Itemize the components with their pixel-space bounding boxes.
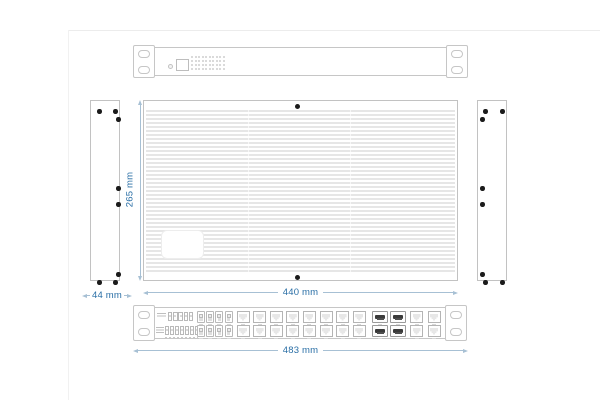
vent-hole <box>198 68 200 70</box>
port-number <box>258 338 262 340</box>
terminal-contact <box>168 312 172 321</box>
dimension-265-label: 265 mm <box>125 168 136 212</box>
mounting-ear-left <box>133 45 155 78</box>
terminal-contact <box>180 326 184 335</box>
fin-joint <box>350 110 351 272</box>
page-border-top <box>68 30 600 31</box>
side-view-right <box>477 100 507 281</box>
sfp-port <box>215 311 223 323</box>
port-number <box>274 338 278 340</box>
terminal-contact <box>189 312 193 321</box>
vent-hole <box>202 64 204 66</box>
terminal-contact <box>170 326 174 335</box>
terminal-contact <box>185 326 189 335</box>
vent-hole <box>198 56 200 58</box>
rj45-port <box>303 311 316 323</box>
dimensional-drawing: 265 mm 440 mm 44 mm 483 mm <box>0 0 600 400</box>
vent-hole <box>195 56 197 58</box>
power-socket <box>176 59 189 71</box>
rj45-port <box>253 325 266 337</box>
port-number <box>208 338 212 340</box>
port-number <box>227 338 231 340</box>
sfp-port <box>197 325 205 337</box>
port-number <box>291 338 295 340</box>
vent-hole <box>202 56 204 58</box>
rj45-port <box>353 325 366 337</box>
rj45-port <box>336 311 349 323</box>
dimension-44: 44 mm <box>82 290 132 301</box>
terminal-contact <box>190 326 194 335</box>
rj45-port <box>270 325 283 337</box>
side-view-left <box>90 100 120 281</box>
vent-hole <box>209 60 211 62</box>
vent-hole <box>205 64 207 66</box>
rj45-port <box>320 311 333 323</box>
rj45-port <box>353 311 366 323</box>
vent-hole <box>216 64 218 66</box>
sfp-port <box>215 325 223 337</box>
rj45-port <box>237 325 250 337</box>
vent-hole <box>219 56 221 58</box>
port-number <box>432 338 436 340</box>
vent-hole <box>198 64 200 66</box>
vent-hole <box>212 68 214 70</box>
sfp-plus-port <box>390 325 406 337</box>
vent-hole <box>219 64 221 66</box>
port-number <box>217 338 221 340</box>
port-number <box>324 338 328 340</box>
dimension-440: 440 mm <box>143 287 458 298</box>
screw-hole-icon <box>295 275 300 280</box>
port-number <box>199 338 203 340</box>
ear-hole-icon <box>451 66 463 74</box>
vent-hole <box>191 60 193 62</box>
ear-hole-icon <box>138 328 150 336</box>
rj45-port <box>320 325 333 337</box>
terminal-label <box>156 327 164 333</box>
vent-hole <box>195 64 197 66</box>
ground-screw-icon <box>168 64 173 69</box>
terminal-contact <box>173 312 177 321</box>
top-view <box>143 100 458 281</box>
vent-hole <box>212 60 214 62</box>
vent-hole <box>195 68 197 70</box>
terminal-caption <box>165 337 198 339</box>
vent-hole <box>216 56 218 58</box>
vent-hole <box>198 60 200 62</box>
ear-hole-icon <box>138 50 150 58</box>
terminal-contact <box>178 312 182 321</box>
ear-hole-icon <box>138 311 150 319</box>
rj45-port <box>286 311 299 323</box>
sfp-port <box>206 325 214 337</box>
vent-hole <box>205 60 207 62</box>
mounting-ear-right <box>445 305 467 341</box>
rj45-uplink-port <box>428 311 441 323</box>
port-number <box>378 338 382 340</box>
vent-hole <box>212 64 214 66</box>
vent-hole <box>212 56 214 58</box>
vent-hole <box>216 60 218 62</box>
port-number <box>415 338 419 340</box>
vent-hole <box>209 56 211 58</box>
terminal-label <box>157 313 166 318</box>
port-number <box>396 338 400 340</box>
vent-hole <box>223 60 225 62</box>
page-border-left <box>68 30 69 400</box>
vent-hole <box>219 60 221 62</box>
vent-hole <box>223 68 225 70</box>
ear-hole-icon <box>450 328 462 336</box>
product-label <box>161 230 204 259</box>
sfp-plus-port <box>372 325 388 337</box>
vent-hole <box>209 64 211 66</box>
ear-hole-icon <box>450 311 462 319</box>
sfp-plus-port <box>372 311 388 323</box>
dimension-483-label: 483 mm <box>278 345 324 356</box>
rj45-uplink-port <box>410 311 423 323</box>
vent-hole <box>202 60 204 62</box>
vent-hole <box>209 68 211 70</box>
vent-hole <box>191 68 193 70</box>
rj45-port <box>336 325 349 337</box>
vent-hole <box>195 60 197 62</box>
port-number <box>341 338 345 340</box>
dimension-440-label: 440 mm <box>278 287 324 298</box>
vent-hole <box>202 68 204 70</box>
vent-grid-icon <box>191 56 226 72</box>
terminal-contact <box>184 312 188 321</box>
port-number <box>241 338 245 340</box>
rj45-port <box>286 325 299 337</box>
sfp-port <box>225 325 233 337</box>
ear-hole-icon <box>138 66 150 74</box>
vent-hole <box>205 68 207 70</box>
terminal-contact <box>165 326 169 335</box>
sfp-port <box>225 311 233 323</box>
vent-hole <box>191 64 193 66</box>
front-panel-ports <box>154 307 447 339</box>
rj45-uplink-port <box>428 325 441 337</box>
vent-hole <box>219 68 221 70</box>
terminal-contact <box>175 326 179 335</box>
rj45-uplink-port <box>410 325 423 337</box>
sfp-port <box>197 311 205 323</box>
sfp-plus-port <box>390 311 406 323</box>
dimension-483: 483 mm <box>133 345 468 356</box>
rj45-port <box>253 311 266 323</box>
vent-hole <box>191 56 193 58</box>
screw-hole-icon <box>295 104 300 109</box>
sfp-port <box>206 311 214 323</box>
port-number <box>357 338 361 340</box>
vent-hole <box>205 56 207 58</box>
vent-hole <box>223 64 225 66</box>
vent-hole <box>223 56 225 58</box>
rj45-port <box>303 325 316 337</box>
rj45-port <box>237 311 250 323</box>
ear-hole-icon <box>451 50 463 58</box>
fin-joint <box>248 110 249 272</box>
rj45-port <box>270 311 283 323</box>
vent-hole <box>216 68 218 70</box>
mounting-ear-left <box>133 305 155 341</box>
dimension-44-label: 44 mm <box>90 290 124 301</box>
port-number <box>307 338 311 340</box>
mounting-ear-right <box>446 45 468 78</box>
